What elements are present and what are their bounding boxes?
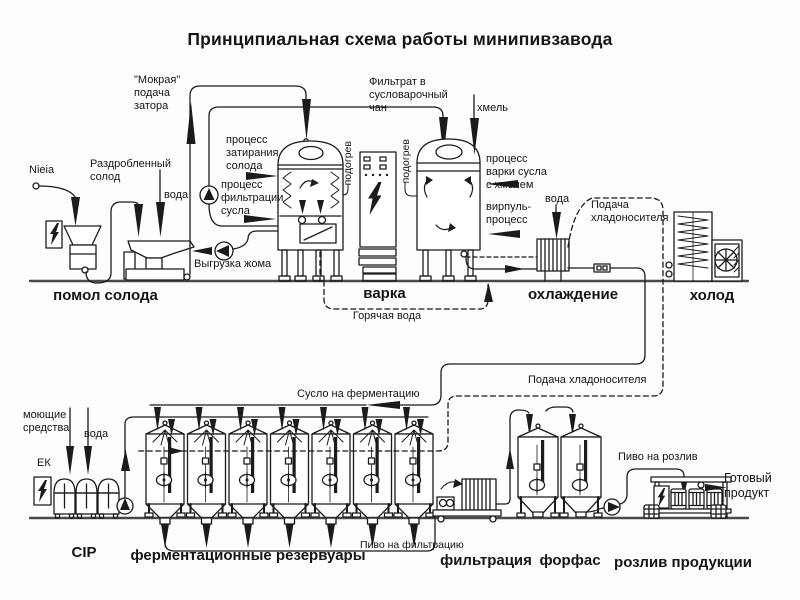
cip-tank [76, 479, 97, 518]
flow-arrow-up [121, 449, 130, 471]
diagram-title: Принципиальная схема работы минипивзавод… [0, 29, 800, 50]
flow-arrow-right [505, 265, 524, 273]
fermenter-tank [270, 407, 310, 548]
coolant-supply-bottom-label: Подача хладоносителя [528, 374, 646, 387]
wet-mash-label: "Мокрая" подача затора [134, 74, 180, 113]
forfas-tank [517, 424, 559, 517]
fermenter-tank [311, 407, 351, 548]
keg-icon [671, 489, 686, 509]
control-panel [359, 152, 396, 281]
finished-product-label: Готовый продукт [724, 471, 772, 501]
malt-mill [33, 183, 101, 273]
fermenter-tank [187, 407, 227, 548]
section-label-cip: CIP [52, 544, 116, 562]
cip-tank [54, 479, 75, 518]
hops-label: хмель [477, 102, 508, 115]
mashing-process-label: процесс затирания солода [226, 134, 279, 173]
keg-icon [689, 489, 704, 509]
flow-arrow-down [302, 99, 311, 140]
flow-arrow-left [192, 247, 212, 255]
coolant-pipes [136, 198, 663, 451]
flow-arrow-up [484, 283, 493, 302]
detergents-label: моющие средства [23, 409, 69, 435]
crushed-malt-label: Раздробленный солод [90, 158, 171, 184]
refrigeration-unit [666, 212, 742, 281]
section-label-milling: помол солода [43, 287, 168, 305]
barrel-icon [644, 505, 659, 518]
coolant-supply-top-label: Подача хладоносителя [591, 199, 668, 225]
wort-to-fermentation-label: Сусло на ферментацию [297, 388, 420, 401]
barrel-icon [711, 505, 726, 518]
section-label-fermentation: ферментационные резервуары [118, 547, 378, 565]
fermenter-tank [353, 407, 393, 548]
water-label-mill: вода [164, 189, 188, 202]
brewery-flow-diagram: Принципиальная схема работы минипивзавод… [0, 0, 800, 600]
forfas-tank [560, 424, 602, 517]
detergent-arrow [66, 446, 74, 475]
malt-feed-arrow [134, 204, 143, 237]
water-label-cooling: вода [545, 193, 569, 206]
water-arrow [552, 212, 561, 239]
spent-grain-pump [192, 231, 278, 260]
fermenter-tank [228, 407, 268, 548]
hot-water-label: Горячая вода [347, 310, 427, 323]
section-label-filtration: фильтрация [434, 552, 538, 570]
water-feed-arrow [156, 202, 165, 237]
heating-label-kettle: подогрев [400, 138, 412, 184]
ek-label: ЕК [37, 457, 51, 470]
mash-mixer-hopper [86, 170, 194, 283]
beer-to-bottling-label: Пиво на розлив [618, 451, 698, 464]
filtrate-label: Фильтрат в сусловарочный чан [369, 76, 448, 115]
heating-label-mash: подогрев [342, 140, 354, 186]
water-arrow [84, 446, 92, 475]
section-label-cold: холод [675, 287, 749, 305]
malt-supply-label: Nieia [29, 164, 54, 177]
section-label-bottling: розлив продукции [608, 554, 758, 572]
boiling-process-label: процесс варки сусла с хмелем [486, 153, 547, 192]
mash-lauter-tun [278, 141, 348, 281]
section-label-cooling: охлаждение [517, 286, 629, 304]
flow-arrow-up [506, 448, 514, 469]
section-label-brewing: варка [352, 285, 417, 303]
water-label-cip: вода [84, 428, 108, 441]
filling-machine [644, 477, 731, 518]
cip-tank [98, 479, 119, 518]
fermenter-tank [394, 407, 434, 548]
fermenters [145, 407, 435, 551]
fermenter-tank [145, 407, 185, 548]
section-label-forfas: форфас [526, 552, 614, 570]
wort-arrow-left [366, 401, 400, 409]
wort-filtration-label: процесс фильтрации сусла [221, 179, 283, 218]
flow-arrow [71, 197, 80, 226]
spent-grain-label: Выгрузка жома [194, 258, 271, 271]
whirlpool-label: вирпуль- процесс [486, 201, 531, 227]
flow-arrow-up [187, 102, 196, 144]
